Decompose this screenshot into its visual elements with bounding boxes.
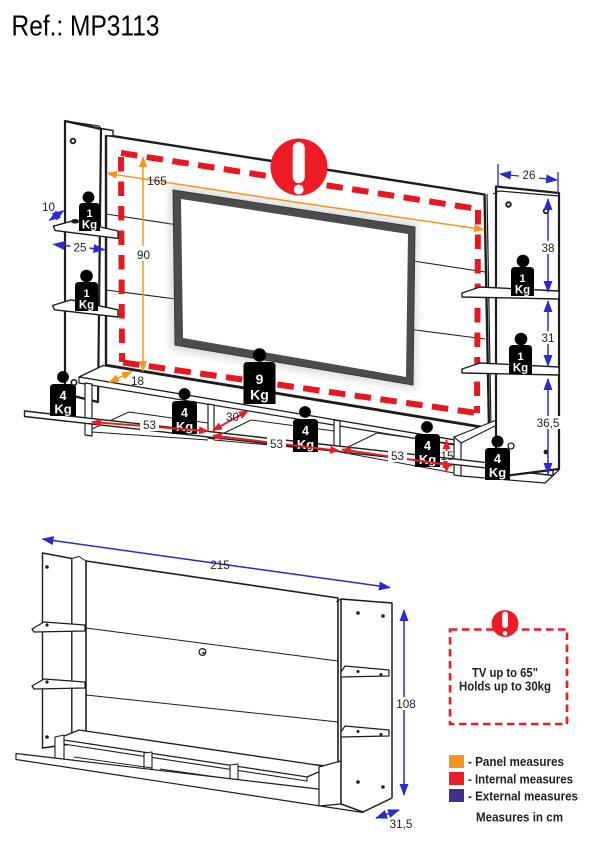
svg-text:25: 25 bbox=[73, 242, 87, 255]
svg-text:1: 1 bbox=[519, 273, 525, 285]
svg-text:- External measures: - External measures bbox=[468, 789, 578, 804]
svg-text:- Panel measures: - Panel measures bbox=[468, 754, 564, 769]
svg-text:31: 31 bbox=[541, 332, 554, 345]
svg-text:Kg: Kg bbox=[513, 363, 528, 375]
svg-text:18: 18 bbox=[131, 375, 144, 388]
svg-text:15: 15 bbox=[440, 450, 454, 463]
svg-text:53: 53 bbox=[143, 419, 156, 432]
svg-text:Ref.: MP3113: Ref.: MP3113 bbox=[12, 11, 160, 43]
svg-text:Kg: Kg bbox=[79, 300, 94, 312]
svg-text:38: 38 bbox=[541, 242, 554, 255]
svg-text:1: 1 bbox=[86, 208, 92, 220]
svg-text:Kg: Kg bbox=[250, 387, 269, 403]
svg-text:Kg: Kg bbox=[82, 220, 97, 232]
svg-text:36,5: 36,5 bbox=[537, 417, 560, 430]
svg-text:1: 1 bbox=[517, 351, 523, 363]
svg-text:31,5: 31,5 bbox=[390, 818, 413, 831]
svg-text:Kg: Kg bbox=[297, 437, 314, 452]
svg-text:53: 53 bbox=[270, 438, 283, 451]
svg-text:Kg: Kg bbox=[54, 402, 71, 417]
svg-text:215: 215 bbox=[210, 559, 230, 572]
svg-text:165: 165 bbox=[147, 175, 167, 188]
svg-text:4: 4 bbox=[424, 439, 431, 453]
svg-text:Kg: Kg bbox=[489, 465, 506, 480]
svg-text:Kg: Kg bbox=[515, 285, 530, 297]
svg-text:Kg: Kg bbox=[419, 452, 436, 467]
svg-text:9: 9 bbox=[256, 371, 264, 387]
svg-text:Holds up to 30kg: Holds up to 30kg bbox=[459, 679, 551, 694]
svg-text:- Internal measures: - Internal measures bbox=[468, 772, 573, 787]
svg-text:53: 53 bbox=[391, 450, 404, 463]
svg-text:4: 4 bbox=[181, 406, 188, 420]
svg-text:10: 10 bbox=[42, 201, 56, 214]
svg-text:90: 90 bbox=[137, 249, 151, 262]
svg-text:1: 1 bbox=[83, 288, 89, 300]
svg-text:Measures in cm: Measures in cm bbox=[476, 810, 563, 825]
svg-text:26: 26 bbox=[522, 169, 535, 182]
svg-text:108: 108 bbox=[396, 698, 416, 711]
svg-text:4: 4 bbox=[494, 452, 501, 466]
svg-text:30: 30 bbox=[226, 411, 240, 424]
svg-text:4: 4 bbox=[302, 424, 309, 438]
svg-text:Kg: Kg bbox=[176, 419, 193, 434]
